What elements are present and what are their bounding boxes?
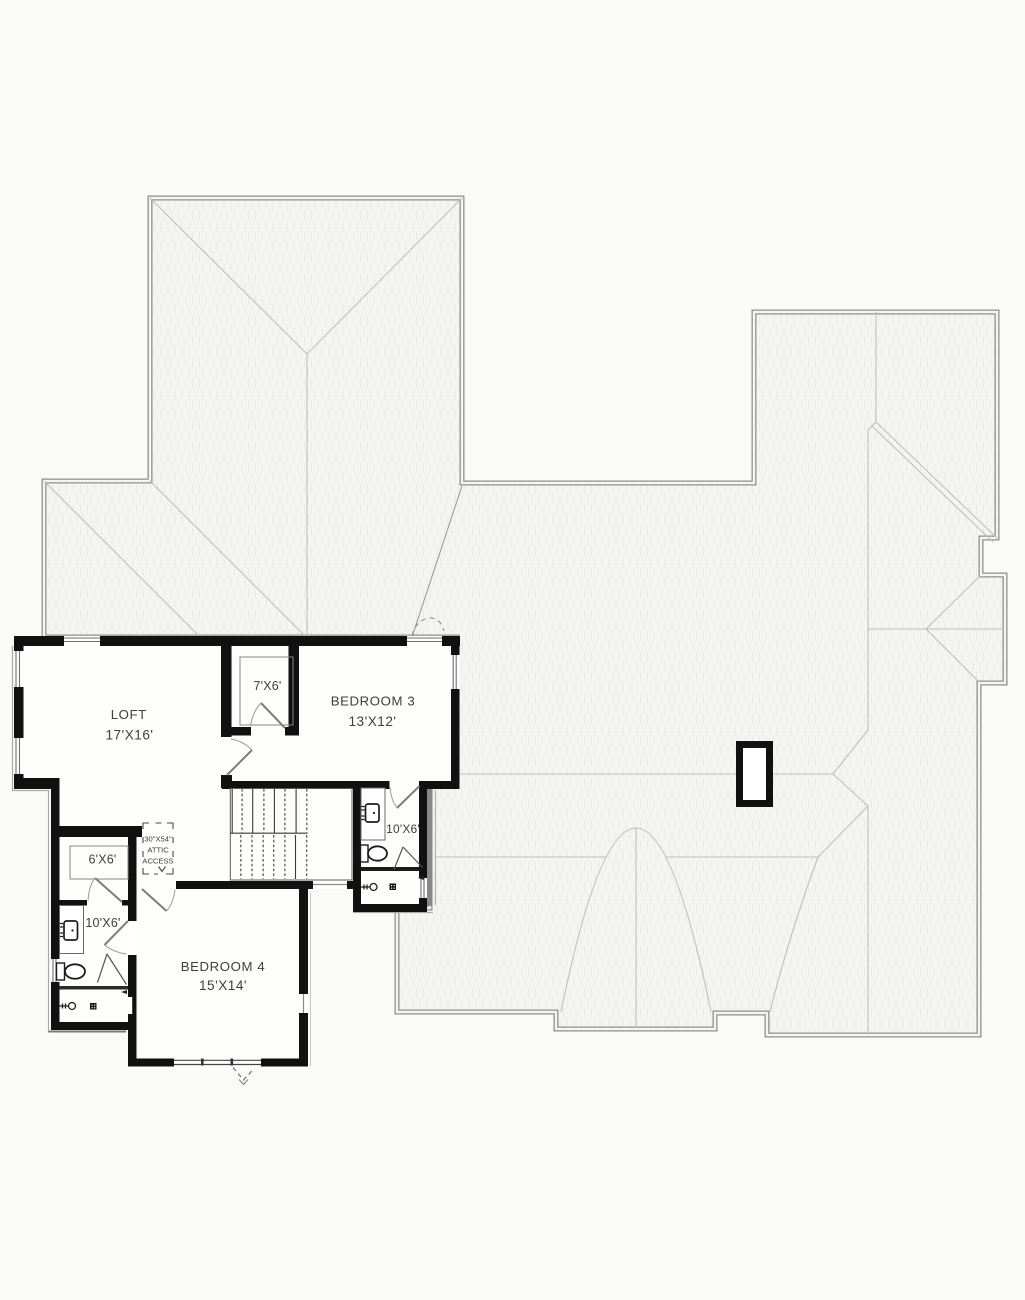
svg-text:LOFT: LOFT — [111, 707, 147, 722]
svg-text:6'X6': 6'X6' — [88, 853, 116, 867]
svg-text:ACCESS: ACCESS — [142, 857, 173, 866]
svg-text:10'X6': 10'X6' — [85, 916, 120, 930]
svg-text:13'X12': 13'X12' — [349, 714, 397, 729]
svg-text:15'X14': 15'X14' — [199, 978, 247, 993]
svg-text:BEDROOM 4: BEDROOM 4 — [181, 959, 266, 974]
svg-text:17'X16': 17'X16' — [106, 728, 154, 743]
svg-text:10'X6': 10'X6' — [386, 822, 420, 836]
svg-text:ATTIC: ATTIC — [147, 846, 169, 855]
svg-text:7'X6': 7'X6' — [253, 679, 281, 693]
svg-text:30"X54": 30"X54" — [144, 835, 172, 844]
svg-text:BEDROOM 3: BEDROOM 3 — [331, 694, 416, 709]
